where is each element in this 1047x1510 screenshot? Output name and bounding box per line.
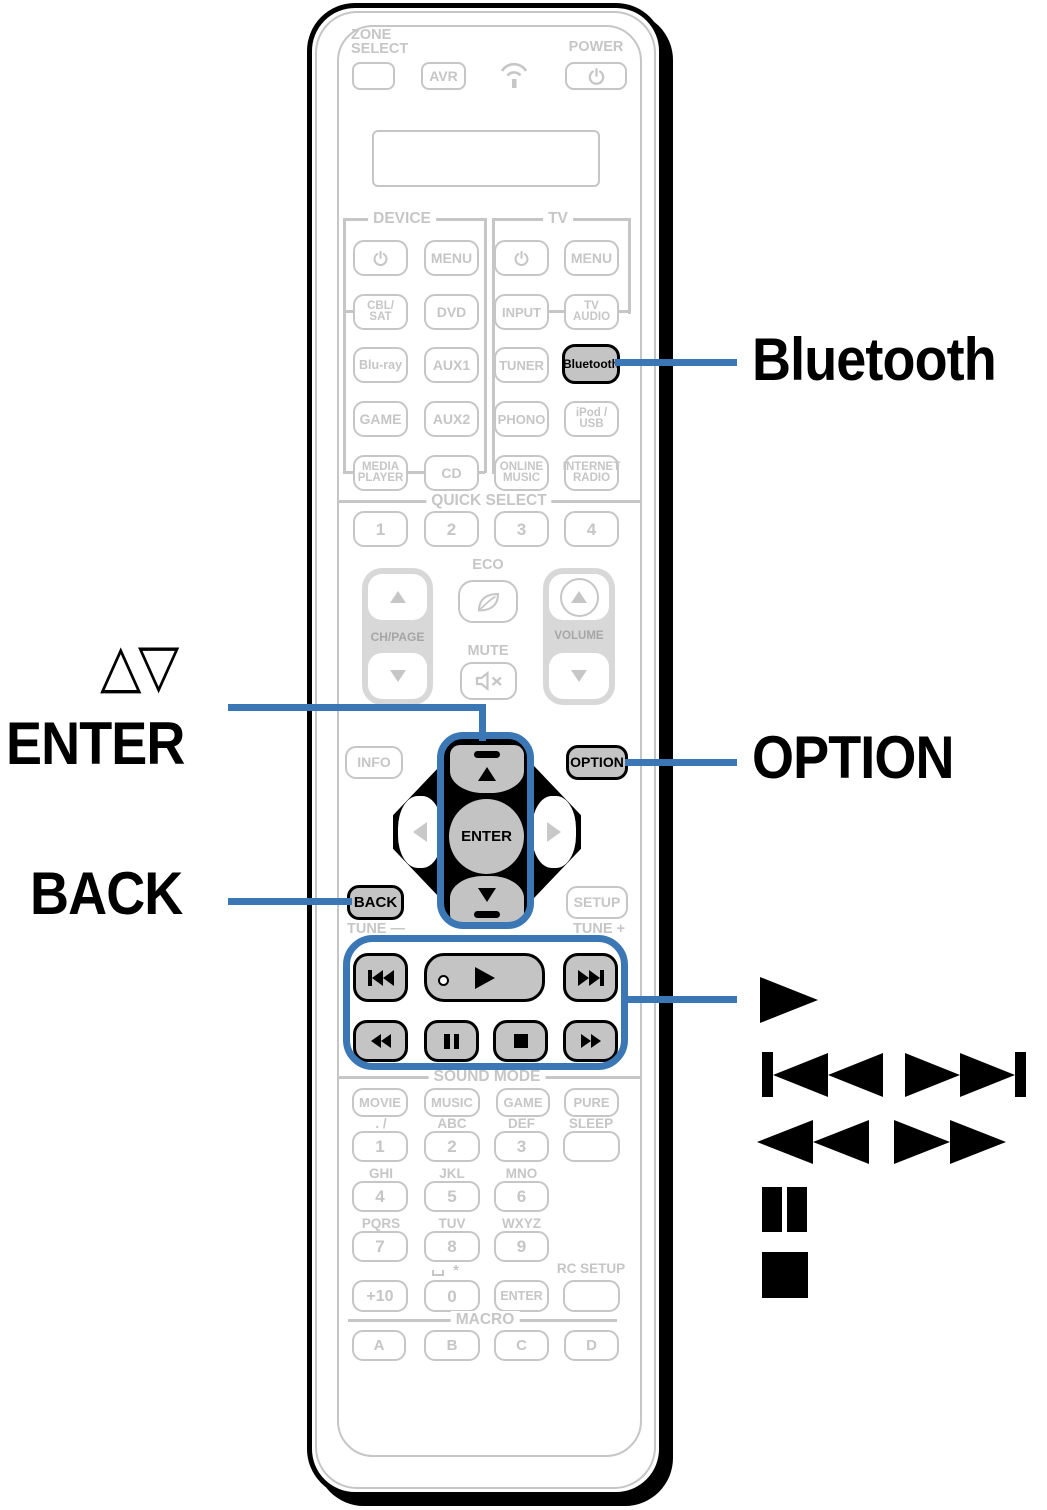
hint-tuv: TUV <box>426 1217 478 1231</box>
tune-minus-label: TUNE — <box>347 922 409 936</box>
power-button[interactable] <box>565 62 627 90</box>
sleep-label: SLEEP <box>561 1117 621 1131</box>
cursor-highlight-rect <box>437 732 534 929</box>
aux1-button[interactable]: AUX1 <box>424 347 479 383</box>
macro-a-button[interactable]: A <box>352 1330 406 1361</box>
quick-select-4[interactable]: 4 <box>564 511 619 547</box>
volume-up-circle-icon <box>560 578 599 617</box>
zone-select-label: ZONE SELECT <box>351 28 401 56</box>
cursor-right-icon <box>547 822 561 842</box>
key-1[interactable]: 1 <box>352 1131 408 1162</box>
down-triangle-icon <box>571 670 587 682</box>
hint-dot-slash: . / <box>355 1117 407 1131</box>
online-music-button[interactable]: ONLINE MUSIC <box>494 455 549 491</box>
key-3[interactable]: 3 <box>494 1131 549 1162</box>
skip-symbols <box>762 1052 1026 1097</box>
remote-diagram: ZONE SELECT POWER AVR DEVICE TV <box>0 0 1047 1510</box>
power-icon <box>513 237 530 280</box>
star-symbol: * <box>449 1264 463 1278</box>
sleep-button[interactable] <box>563 1131 620 1162</box>
tune-plus-label: TUNE + <box>563 922 625 936</box>
hint-ghi: GHI <box>355 1167 407 1181</box>
display-window <box>372 130 600 187</box>
device-bracket-left <box>343 218 346 473</box>
eco-label: ECO <box>458 558 518 572</box>
callout-back: BACK <box>30 864 182 924</box>
cursor-right-button[interactable] <box>532 796 576 868</box>
movie-button[interactable]: MOVIE <box>352 1088 408 1117</box>
power-icon <box>372 237 389 280</box>
tv-audio-button[interactable]: TV AUDIO <box>564 294 619 330</box>
hint-wxyz: WXYZ <box>496 1217 547 1231</box>
sound-mode-label: SOUND MODE <box>429 1068 546 1086</box>
volume-rocker[interactable]: VOLUME <box>543 568 615 705</box>
macro-c-button[interactable]: C <box>494 1330 549 1361</box>
input-button[interactable]: INPUT <box>494 294 549 330</box>
blu-ray-button[interactable]: Blu-ray <box>353 347 408 383</box>
back-button[interactable]: BACK <box>347 885 404 920</box>
callout-line-bluetooth <box>615 359 737 366</box>
transmit-icon <box>497 58 531 90</box>
tuner-button[interactable]: TUNER <box>494 347 549 383</box>
game-button[interactable]: GAME <box>353 401 408 437</box>
bracket-stub <box>619 310 629 313</box>
internet-radio-button[interactable]: INTERNET RADIO <box>564 455 619 491</box>
volume-label: VOLUME <box>543 630 615 642</box>
mute-speaker-icon <box>474 657 504 705</box>
key-5[interactable]: 5 <box>424 1181 480 1212</box>
bluetooth-button[interactable]: Bluetooth <box>562 344 620 384</box>
device-menu-button[interactable]: MENU <box>424 240 479 276</box>
bracket-stub <box>408 471 425 474</box>
play-symbol <box>760 977 818 1023</box>
callout-line-enter <box>228 704 486 711</box>
media-player-button[interactable]: MEDIA PLAYER <box>353 455 408 491</box>
eco-button[interactable] <box>458 580 518 623</box>
tv-section-label: TV <box>543 210 573 228</box>
callout-line-back <box>228 898 352 905</box>
volume-down-button[interactable] <box>549 653 609 699</box>
channel-down-button[interactable] <box>368 653 427 699</box>
hint-pqrs: PQRS <box>355 1217 407 1231</box>
space-symbol <box>432 1270 444 1276</box>
quick-select-label: QUICK SELECT <box>426 492 551 510</box>
zone-select-button[interactable] <box>352 62 395 90</box>
key-9[interactable]: 9 <box>494 1231 549 1262</box>
mute-label: MUTE <box>458 644 518 658</box>
plus10-button[interactable]: +10 <box>352 1280 408 1312</box>
ch-page-label: CH/PAGE <box>362 630 433 644</box>
device-power-button[interactable] <box>353 240 408 276</box>
quick-select-1[interactable]: 1 <box>353 511 408 547</box>
callout-bluetooth: Bluetooth <box>752 330 996 390</box>
info-button[interactable]: INFO <box>345 746 403 779</box>
callout-line-playback <box>624 996 737 1003</box>
bracket-stub <box>343 471 353 474</box>
ipod-usb-button[interactable]: iPod / USB <box>564 401 619 437</box>
quick-select-3[interactable]: 3 <box>494 511 549 547</box>
bracket-stub <box>479 471 485 474</box>
device-bracket-right <box>484 218 487 473</box>
cursor-left-icon <box>413 822 427 842</box>
tv-power-button[interactable] <box>494 240 549 276</box>
tv-menu-button[interactable]: MENU <box>564 240 619 276</box>
key-2[interactable]: 2 <box>424 1131 480 1162</box>
callout-option: OPTION <box>752 728 954 788</box>
bracket-stub <box>549 310 564 313</box>
setup-button[interactable]: SETUP <box>566 886 628 919</box>
key-8[interactable]: 8 <box>424 1231 480 1262</box>
device-section-label: DEVICE <box>368 210 436 228</box>
macro-d-button[interactable]: D <box>564 1330 619 1361</box>
macro-label: MACRO <box>451 1311 520 1329</box>
rc-setup-button[interactable] <box>563 1280 620 1312</box>
rc-setup-label: RC SETUP <box>553 1262 629 1276</box>
option-button[interactable]: OPTION <box>566 745 628 780</box>
macro-b-button[interactable]: B <box>424 1330 480 1361</box>
phono-button[interactable]: PHONO <box>494 401 549 437</box>
hint-mno: MNO <box>496 1167 547 1181</box>
avr-button[interactable]: AVR <box>421 62 466 90</box>
volume-up-button[interactable] <box>549 574 609 620</box>
game-mode-button[interactable]: GAME <box>496 1088 550 1117</box>
pause-symbol <box>762 1187 807 1232</box>
aux2-button[interactable]: AUX2 <box>424 401 479 437</box>
bracket-stub <box>343 310 353 313</box>
hint-jkl: JKL <box>426 1167 478 1181</box>
key-4[interactable]: 4 <box>352 1181 408 1212</box>
callout-line-option <box>625 759 737 766</box>
cd-button[interactable]: CD <box>424 455 479 491</box>
callout-enter: ENTER <box>6 714 185 774</box>
up-triangle-icon <box>390 591 406 603</box>
dvd-button[interactable]: DVD <box>424 294 479 330</box>
pure-button[interactable]: PURE <box>564 1088 619 1117</box>
cursor-left-button[interactable] <box>398 796 442 868</box>
playback-highlight-rect <box>343 935 628 1070</box>
key-7[interactable]: 7 <box>352 1231 408 1262</box>
hint-abc: ABC <box>426 1117 478 1131</box>
tv-bracket-right <box>628 218 631 314</box>
channel-up-button[interactable] <box>368 574 427 620</box>
quick-select-2[interactable]: 2 <box>424 511 479 547</box>
scan-symbols <box>757 1120 1006 1164</box>
music-button[interactable]: MUSIC <box>424 1088 480 1117</box>
ch-page-rocker[interactable]: CH/PAGE <box>362 568 433 705</box>
power-label: POWER <box>566 40 626 54</box>
callout-cursor-triangles: △▽ <box>100 636 176 696</box>
stop-symbol <box>762 1252 808 1298</box>
mute-button[interactable] <box>460 662 517 700</box>
eco-leaf-icon <box>475 577 501 627</box>
down-triangle-icon <box>390 670 406 682</box>
key-0[interactable]: 0 <box>424 1280 480 1312</box>
cbl-sat-button[interactable]: CBL/ SAT <box>353 294 408 330</box>
hint-def: DEF <box>496 1117 547 1131</box>
keypad-enter-button[interactable]: ENTER <box>494 1280 549 1312</box>
key-6[interactable]: 6 <box>494 1181 549 1212</box>
power-icon <box>587 54 606 99</box>
callout-line-enter-drop <box>479 704 486 741</box>
